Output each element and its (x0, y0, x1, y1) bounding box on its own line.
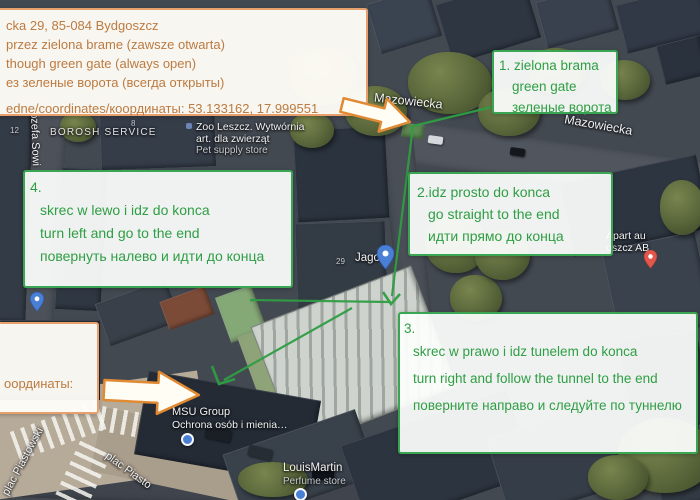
arrow-to-destination (103, 369, 200, 416)
orange-arrows (0, 0, 700, 500)
arrow-to-gate (338, 89, 414, 139)
map-canvas[interactable]: Mazowiecka Mazowiecka ózefa Sowi plac Pi… (0, 0, 700, 500)
